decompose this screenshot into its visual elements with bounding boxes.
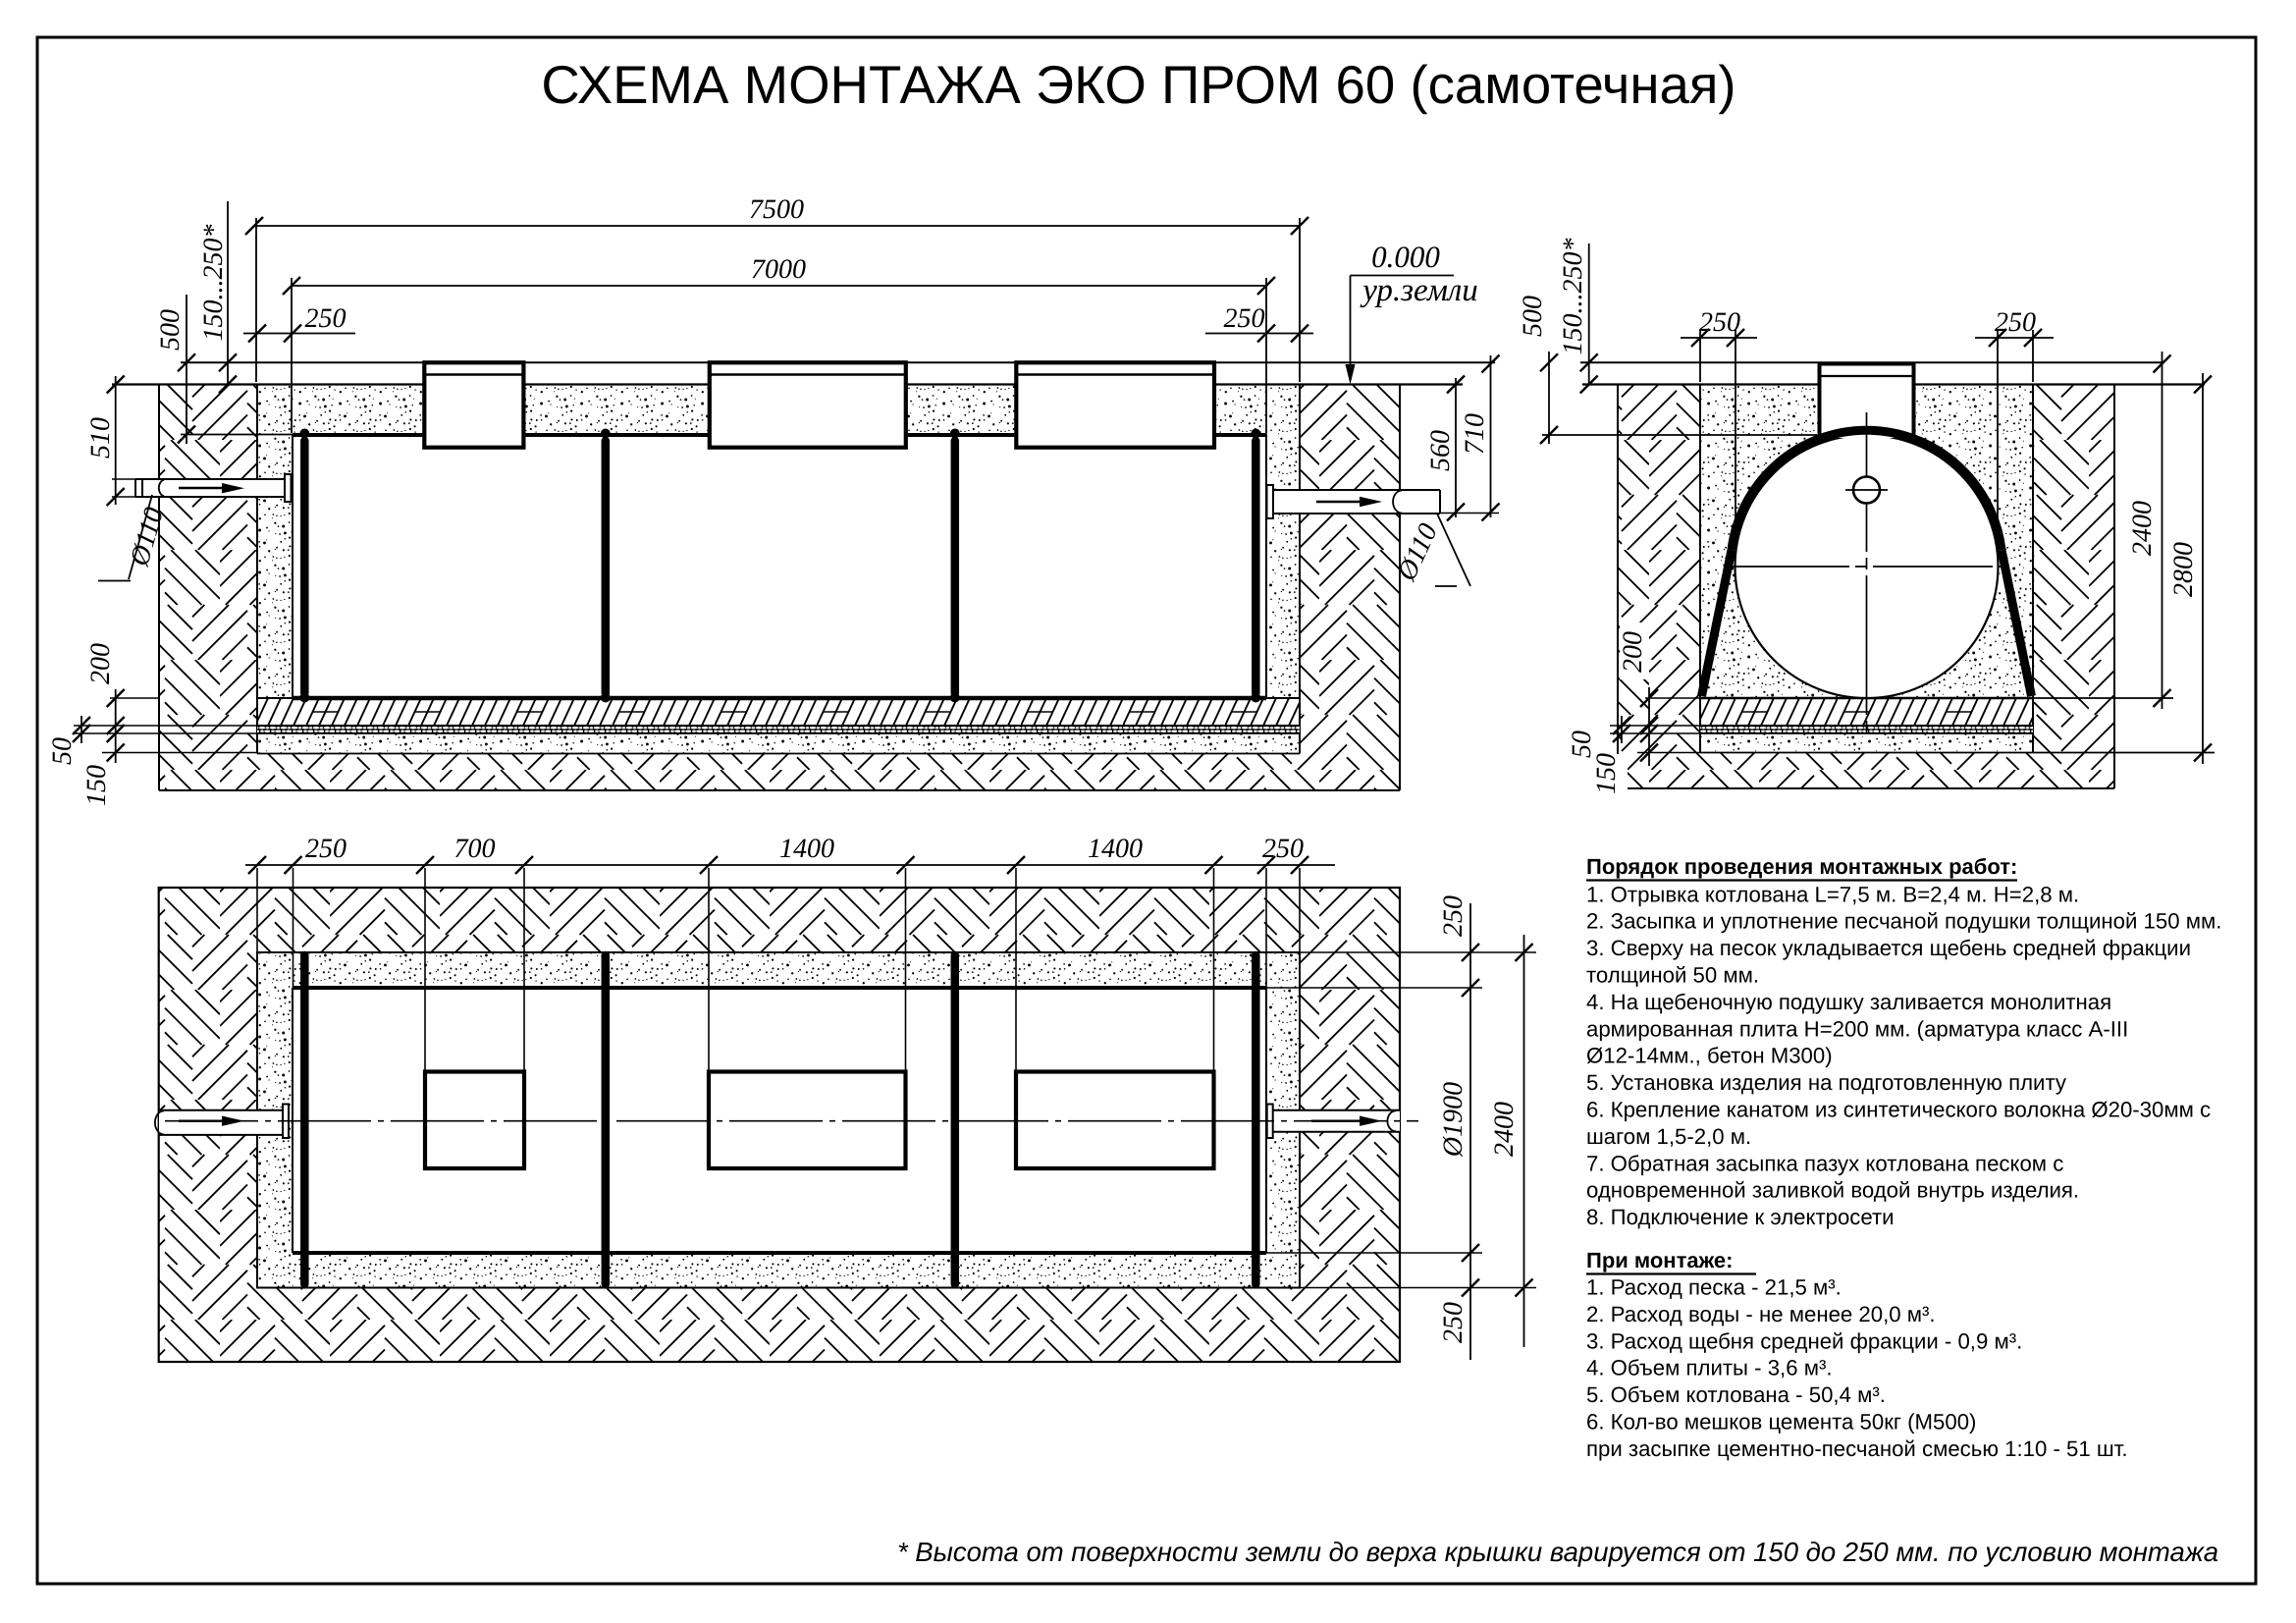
svg-text:2400: 2400 [2127,501,2158,556]
svg-text:710: 710 [1460,413,1490,455]
svg-text:7000: 7000 [751,254,806,285]
svg-text:700: 700 [454,834,496,864]
svg-text:50: 50 [47,737,78,765]
svg-text:При монтаже:: При монтаже: [1586,1248,1733,1272]
svg-text:4. На щебеночную подушку залив: 4. На щебеночную подушку заливается моно… [1586,990,2111,1014]
svg-text:Ø1900: Ø1900 [1438,1082,1468,1158]
svg-text:шагом 1,5-2,0 м.: шагом 1,5-2,0 м. [1586,1124,1751,1149]
svg-text:2400: 2400 [1489,1102,1520,1157]
svg-text:150...250*: 150...250* [1558,239,1588,355]
svg-text:250: 250 [1995,307,2036,338]
svg-text:7. Обратная засыпка пазух котл: 7. Обратная засыпка пазух котлована песк… [1586,1151,2063,1175]
svg-text:при засыпке цементно-песчаной: при засыпке цементно-песчаной смесью 1:1… [1586,1436,2128,1461]
svg-text:500: 500 [1518,296,1548,337]
svg-text:250: 250 [1699,307,1740,338]
svg-text:250: 250 [1438,895,1468,937]
svg-text:1. Отрывка котлована L=7,5 м.: 1. Отрывка котлована L=7,5 м. B=2,4 м. H… [1586,882,2079,906]
svg-text:150: 150 [81,765,112,806]
svg-text:200: 200 [1618,631,1648,673]
svg-text:Ø12-14мм., бетон М300): Ø12-14мм., бетон М300) [1586,1044,1833,1068]
svg-text:СХЕМА МОНТАЖА ЭКО ПРОМ 60 (сам: СХЕМА МОНТАЖА ЭКО ПРОМ 60 (самотечная) [541,55,1735,115]
svg-text:3. Расход щебня средней фракци: 3. Расход щебня средней фракции - 0,9 м³… [1586,1328,2022,1353]
svg-text:4. Объем плиты - 3,6 м³.: 4. Объем плиты - 3,6 м³. [1586,1356,1833,1380]
svg-text:3. Сверху на песок укладываетс: 3. Сверху на песок укладывается щебень с… [1586,936,2191,960]
svg-text:150...250*: 150...250* [198,225,229,342]
svg-text:1400: 1400 [779,834,834,864]
svg-text:250: 250 [1262,834,1304,864]
svg-text:560: 560 [1425,430,1456,471]
svg-text:1400: 1400 [1088,834,1143,864]
svg-text:250: 250 [305,303,347,334]
svg-text:5. Установка изделия на подгот: 5. Установка изделия на подготовленную п… [1586,1070,2067,1095]
svg-text:одновременной заливкой водой в: одновременной заливкой водой внутрь изде… [1586,1178,2079,1203]
svg-text:250: 250 [305,834,347,864]
svg-text:150: 150 [1591,753,1622,794]
svg-text:510: 510 [85,417,116,459]
svg-text:250: 250 [1224,303,1265,334]
svg-text:толщиной 50 мм.: толщиной 50 мм. [1586,963,1759,988]
svg-text:500: 500 [155,309,186,351]
svg-text:200: 200 [85,643,116,684]
svg-text:250: 250 [1438,1302,1468,1343]
svg-text:0.000: 0.000 [1371,240,1440,274]
svg-text:2800: 2800 [2168,542,2199,597]
svg-text:6. Кол-во мешков цемента 50кг: 6. Кол-во мешков цемента 50кг (М500) [1586,1410,1976,1434]
svg-text:ур.земли: ур.земли [1360,273,1478,308]
svg-text:Порядок проведения монтажных р: Порядок проведения монтажных работ: [1586,854,2017,879]
svg-text:6. Крепление канатом из синтет: 6. Крепление канатом из синтетического в… [1586,1098,2211,1122]
svg-text:8. Подключение к электросети: 8. Подключение к электросети [1586,1205,1895,1229]
svg-text:армированная плита H=200 мм. (: армированная плита H=200 мм. (арматура к… [1586,1016,2128,1041]
svg-text:7500: 7500 [749,194,804,225]
svg-text:1. Расход песка - 21,5 м³.: 1. Расход песка - 21,5 м³. [1586,1275,1842,1300]
svg-text:2. Засыпка и уплотнение песчан: 2. Засыпка и уплотнение песчаной подушки… [1586,909,2221,934]
svg-text:5. Объем котлована - 50,4 м³.: 5. Объем котлована - 50,4 м³. [1586,1382,1886,1407]
svg-text:2. Расход воды - не менее 20,0: 2. Расход воды - не менее 20,0 м³. [1586,1302,1936,1326]
svg-text:* Высота от поверхности земли: * Высота от поверхности земли до верха к… [897,1537,2218,1567]
